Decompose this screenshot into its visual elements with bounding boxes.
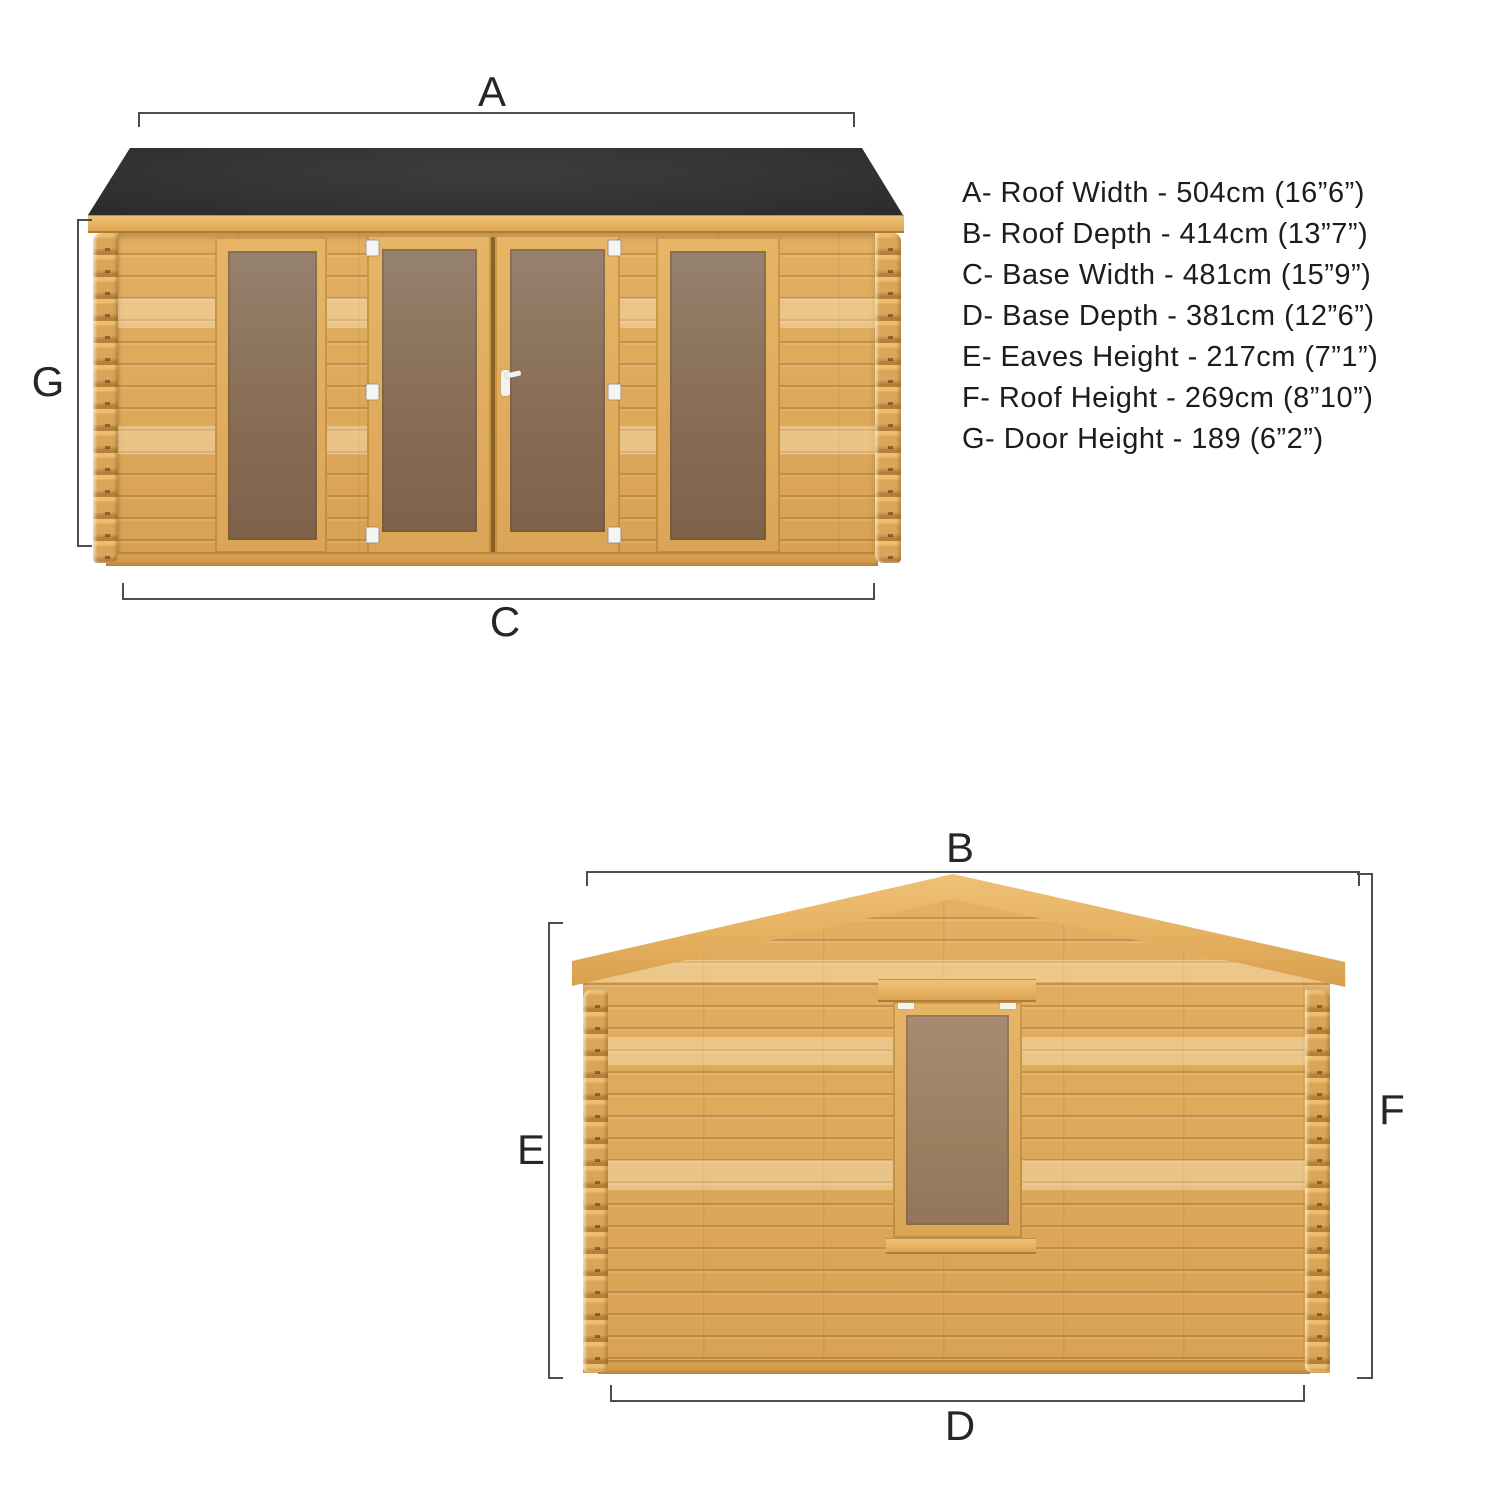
front-window-right-glass — [670, 251, 766, 540]
dim-label-g: G — [32, 361, 65, 403]
spec-line-c: C- Base Width - 481cm (15”9”) — [962, 259, 1472, 300]
side-window-head-trim — [878, 979, 1036, 1002]
front-roof — [88, 148, 903, 215]
dim-tick-e-bottom — [548, 1377, 563, 1379]
spec-line-a: A- Roof Width - 504cm (16”6”) — [962, 177, 1472, 218]
dim-tick-d-right — [1303, 1385, 1305, 1400]
side-window-glass — [906, 1015, 1009, 1225]
dim-label-b: B — [946, 827, 974, 869]
dim-tick-b-left — [586, 871, 588, 886]
dim-tick-f-bottom — [1357, 1377, 1372, 1379]
dim-line-b — [586, 871, 1360, 873]
dimension-diagram: A — [0, 0, 1500, 1500]
dim-label-f: F — [1379, 1089, 1405, 1131]
hinge-icon — [366, 240, 379, 256]
front-left-log-ends — [93, 233, 118, 563]
dim-line-e — [548, 922, 550, 1379]
dim-label-d: D — [945, 1405, 975, 1447]
dim-tick-a-right — [853, 112, 855, 127]
window-hinge-icon — [898, 1003, 914, 1009]
side-right-log-ends — [1305, 990, 1330, 1372]
spec-line-e: E- Eaves Height - 217cm (7”1”) — [962, 341, 1472, 382]
front-base — [106, 552, 878, 566]
spec-line-g: G- Door Height - 189 (6”2”) — [962, 423, 1472, 464]
front-window-left-glass — [228, 251, 317, 540]
dim-line-f — [1371, 873, 1373, 1379]
dim-label-e: E — [517, 1129, 545, 1171]
dim-tick-c-right — [873, 583, 875, 598]
dim-tick-g-bottom — [77, 545, 92, 547]
door-right-glass — [510, 249, 605, 532]
dim-tick-d-left — [610, 1385, 612, 1400]
dim-label-c: C — [490, 601, 520, 643]
dim-tick-g-top — [77, 219, 92, 221]
door-left-glass — [382, 249, 477, 532]
dim-tick-c-left — [122, 583, 124, 598]
side-window-sill — [886, 1238, 1036, 1254]
dim-label-a: A — [478, 71, 506, 113]
hinge-icon — [608, 527, 621, 543]
side-view: B E F D — [0, 780, 1500, 1500]
window-hinge-icon — [1000, 1003, 1016, 1009]
spec-line-d: D- Base Depth - 381cm (12”6”) — [962, 300, 1472, 341]
front-roof-fascia — [88, 215, 904, 233]
spec-line-f: F- Roof Height - 269cm (8”10”) — [962, 382, 1472, 423]
hinge-icon — [608, 384, 621, 400]
spec-line-b: B- Roof Depth - 414cm (13”7”) — [962, 218, 1472, 259]
dim-line-g — [77, 219, 79, 547]
spec-list: A- Roof Width - 504cm (16”6”) B- Roof De… — [962, 177, 1472, 464]
hinge-icon — [608, 240, 621, 256]
hinge-icon — [366, 527, 379, 543]
front-right-log-ends — [875, 233, 901, 563]
hinge-icon — [366, 384, 379, 400]
dim-tick-e-top — [548, 922, 563, 924]
front-view: A — [0, 0, 960, 660]
side-left-log-ends — [583, 990, 608, 1372]
dim-tick-a-left — [138, 112, 140, 127]
side-base — [598, 1360, 1310, 1374]
dim-tick-f-top — [1357, 873, 1372, 875]
